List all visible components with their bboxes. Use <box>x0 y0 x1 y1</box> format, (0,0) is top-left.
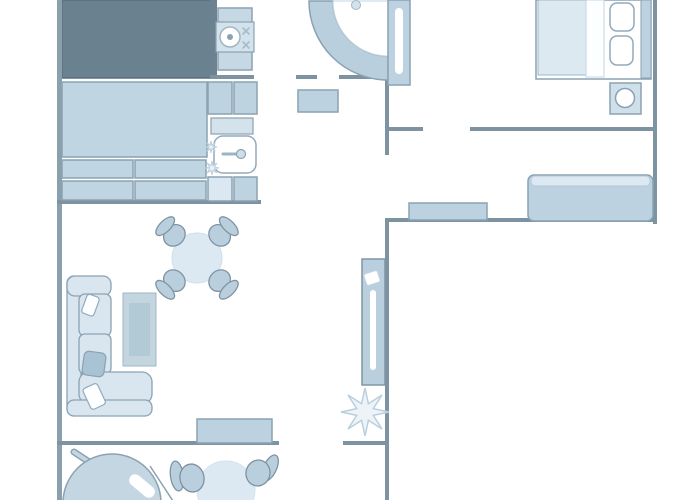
decor-star <box>341 388 389 436</box>
floorplan-canvas <box>0 0 700 500</box>
kitchen-island <box>62 82 207 157</box>
kitchen-counter-b2 <box>135 181 206 200</box>
wall-bedroom-bottom-a <box>385 127 423 131</box>
kitchen-cabinet-sq3 <box>208 177 232 201</box>
wall-living-bottom-b <box>343 441 389 445</box>
sink-sparkle-1 <box>205 141 217 153</box>
kitchen-counter-bar <box>211 118 253 134</box>
shower-drain-dot <box>352 1 361 10</box>
bed-sheet-strip <box>586 0 604 77</box>
bed-pillow-2 <box>610 36 633 65</box>
sink-faucet-dot <box>237 150 246 159</box>
kitchen-cabinet-sq1 <box>208 82 232 114</box>
kitchen-cabinet-sq2 <box>234 82 257 114</box>
sofa-back-bottom <box>67 400 152 416</box>
daybed-cushion-band <box>531 176 650 186</box>
washing-machine-drum-dot <box>227 34 233 40</box>
nightstand-lamp <box>616 89 635 108</box>
kitchen-counter-a2 <box>135 160 206 178</box>
sink-sparkle-2 <box>205 161 219 175</box>
floorplan-page <box>0 0 700 500</box>
wall-hall-right-upper <box>385 75 389 155</box>
wall-bath-bottom-a <box>210 75 254 79</box>
kitchen-counter-b1 <box>62 181 133 200</box>
hall-doormat <box>298 90 338 112</box>
wall-bath-bottom-b <box>296 75 317 79</box>
sideboard <box>197 419 272 443</box>
shower-door-panel-line <box>395 8 403 74</box>
tall-cabinet-line <box>370 290 376 370</box>
kitchen-cabinet-sq4 <box>234 177 257 201</box>
wall-bedroom-bottom-b <box>470 127 657 131</box>
wall-left-outer <box>57 0 62 500</box>
sofa-armrest-top <box>67 276 111 296</box>
bed-duvet <box>538 0 586 75</box>
kitchen-counter-a1 <box>62 160 133 178</box>
bed-pillow-1 <box>610 3 634 31</box>
sofa-pillow-blue <box>81 351 106 378</box>
living-rug-inner <box>129 303 150 356</box>
dark-counter-slab <box>62 0 211 78</box>
bottom-table <box>197 461 255 500</box>
bed-headboard <box>641 0 651 78</box>
midroom-bench <box>409 203 487 220</box>
